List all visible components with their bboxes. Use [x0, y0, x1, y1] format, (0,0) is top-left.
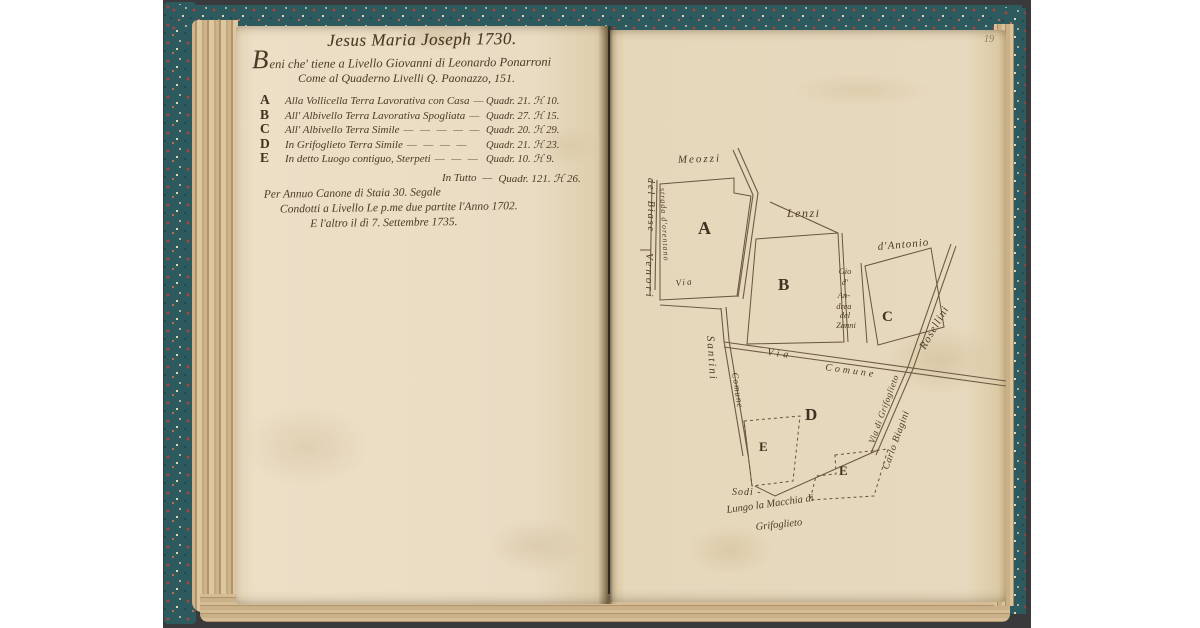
- parcel-measure: Quadr. 20. ℋ 29.: [486, 124, 602, 136]
- road-label-via-comune-comune: Comune: [825, 362, 877, 380]
- parcel-label-a: A: [698, 218, 711, 238]
- road-meozzi-corner-line: [733, 150, 753, 297]
- total-line: In Tutto — Quadr. 121. ℋ 26.: [442, 172, 581, 185]
- parcel-description: In detto Luogo contiguo, Sterpeti: [285, 153, 431, 165]
- intro-line-2: Come al Quaderno Livelli Q. Paonazzo, 15…: [298, 71, 515, 86]
- parcel-label-e2: E: [839, 463, 848, 478]
- total-value: Quadr. 121. ℋ 26.: [498, 172, 580, 185]
- canon-paragraph: Per Annuo Canone di Staia 30. Segale Con…: [264, 184, 518, 233]
- intro-line-1: Beni che' tiene a Livello Giovanni di Le…: [252, 52, 551, 73]
- leader-dashes: —: [469, 96, 486, 107]
- parcel-measure: Quadr. 27. ℋ 15.: [486, 110, 602, 122]
- list-item: A Alla Vollicella Terra Lavorativa con C…: [260, 92, 602, 107]
- parcel-a-outline: [660, 178, 751, 300]
- macchia-boundary-line: [755, 450, 878, 496]
- right-page: 19 A: [610, 30, 1006, 602]
- leader-dashes: — — —: [431, 154, 486, 165]
- list-item: D In Grifoglieto Terra Simile — — — — Qu…: [260, 136, 602, 151]
- parcel-e1-left-edge: [744, 421, 752, 486]
- total-dash: —: [483, 172, 493, 185]
- leader-dashes: — — — — —: [400, 125, 487, 136]
- parcel-measure: Quadr. 10. ℋ 9.: [486, 153, 602, 165]
- parcel-e1-outline: [744, 416, 800, 486]
- parcel-key: D: [260, 136, 285, 152]
- page-title: Jesus Maria Joseph 1730.: [236, 28, 608, 52]
- total-label: In Tutto: [442, 172, 477, 185]
- parcel-description: All' Albivello Terra Simile: [285, 124, 400, 136]
- road-via-grifoglieto-line: [876, 246, 956, 455]
- parcel-label-c: C: [882, 309, 893, 325]
- owner-label-santini: Santini: [704, 335, 719, 381]
- cadastral-map: A B C D E E Meozzi Lenzi d'Antonio del B…: [620, 138, 1010, 558]
- road-via-below-a: [660, 305, 721, 309]
- owner-label-venori: Venori: [643, 253, 655, 300]
- road-label-via-comune-via: Via: [767, 347, 793, 361]
- canon-line-3: E l'altro il dì 7. Settembre 1735.: [310, 214, 518, 232]
- parcel-key: C: [260, 121, 285, 137]
- parcel-description: Alla Vollicella Terra Lavorativa con Cas…: [285, 95, 469, 107]
- book-gutter-shadow: [598, 26, 618, 604]
- page-block-edges-left: [192, 20, 238, 612]
- parcel-measure: Quadr. 21. ℋ 10.: [486, 95, 602, 107]
- list-item: E In detto Luogo contiguo, Sterpeti — — …: [260, 150, 602, 165]
- parcel-key: B: [260, 107, 285, 123]
- parcel-measure: Quadr. 21. ℋ 23.: [486, 139, 602, 151]
- manuscript-scan: Jesus Maria Joseph 1730. Beni che' tiene…: [0, 0, 1200, 628]
- parcel-key: E: [260, 150, 285, 166]
- road-label-via: Via: [675, 276, 694, 288]
- parcel-description: In Grifoglieto Terra Simile: [285, 139, 403, 151]
- land-label-macchia-2: Grifoglieto: [755, 517, 803, 533]
- owner-label-gio-dandrea-del-zanni: Gio d' An- drea del Zanni: [836, 266, 856, 330]
- parcel-key: A: [260, 92, 285, 108]
- owner-label-del-biase: del Biase: [645, 178, 656, 233]
- list-item: B All' Albivello Terra Lavorativa Spogli…: [260, 107, 602, 122]
- leader-dashes: — — — —: [403, 140, 486, 151]
- land-label-sodi: Sodi -: [732, 487, 762, 498]
- parcel-b-outline: [747, 233, 844, 344]
- parcel-label-d: D: [805, 405, 817, 424]
- owner-label-meozzi: Meozzi: [677, 152, 722, 166]
- list-item: C All' Albivello Terra Simile — — — — — …: [260, 121, 602, 136]
- folio-number: 19: [984, 34, 994, 45]
- owner-label-lenzi: Lenzi: [786, 206, 821, 220]
- parcel-label-b: B: [778, 275, 789, 294]
- leader-dashes: — —: [465, 111, 486, 122]
- parcel-description: All' Albivello Terra Lavorativa Spogliat…: [285, 110, 465, 122]
- parcel-e2-outline: [810, 449, 888, 500]
- parcel-list: A Alla Vollicella Terra Lavorativa con C…: [260, 92, 602, 165]
- left-page: Jesus Maria Joseph 1730. Beni che' tiene…: [236, 26, 608, 604]
- parcel-label-e1: E: [759, 439, 768, 454]
